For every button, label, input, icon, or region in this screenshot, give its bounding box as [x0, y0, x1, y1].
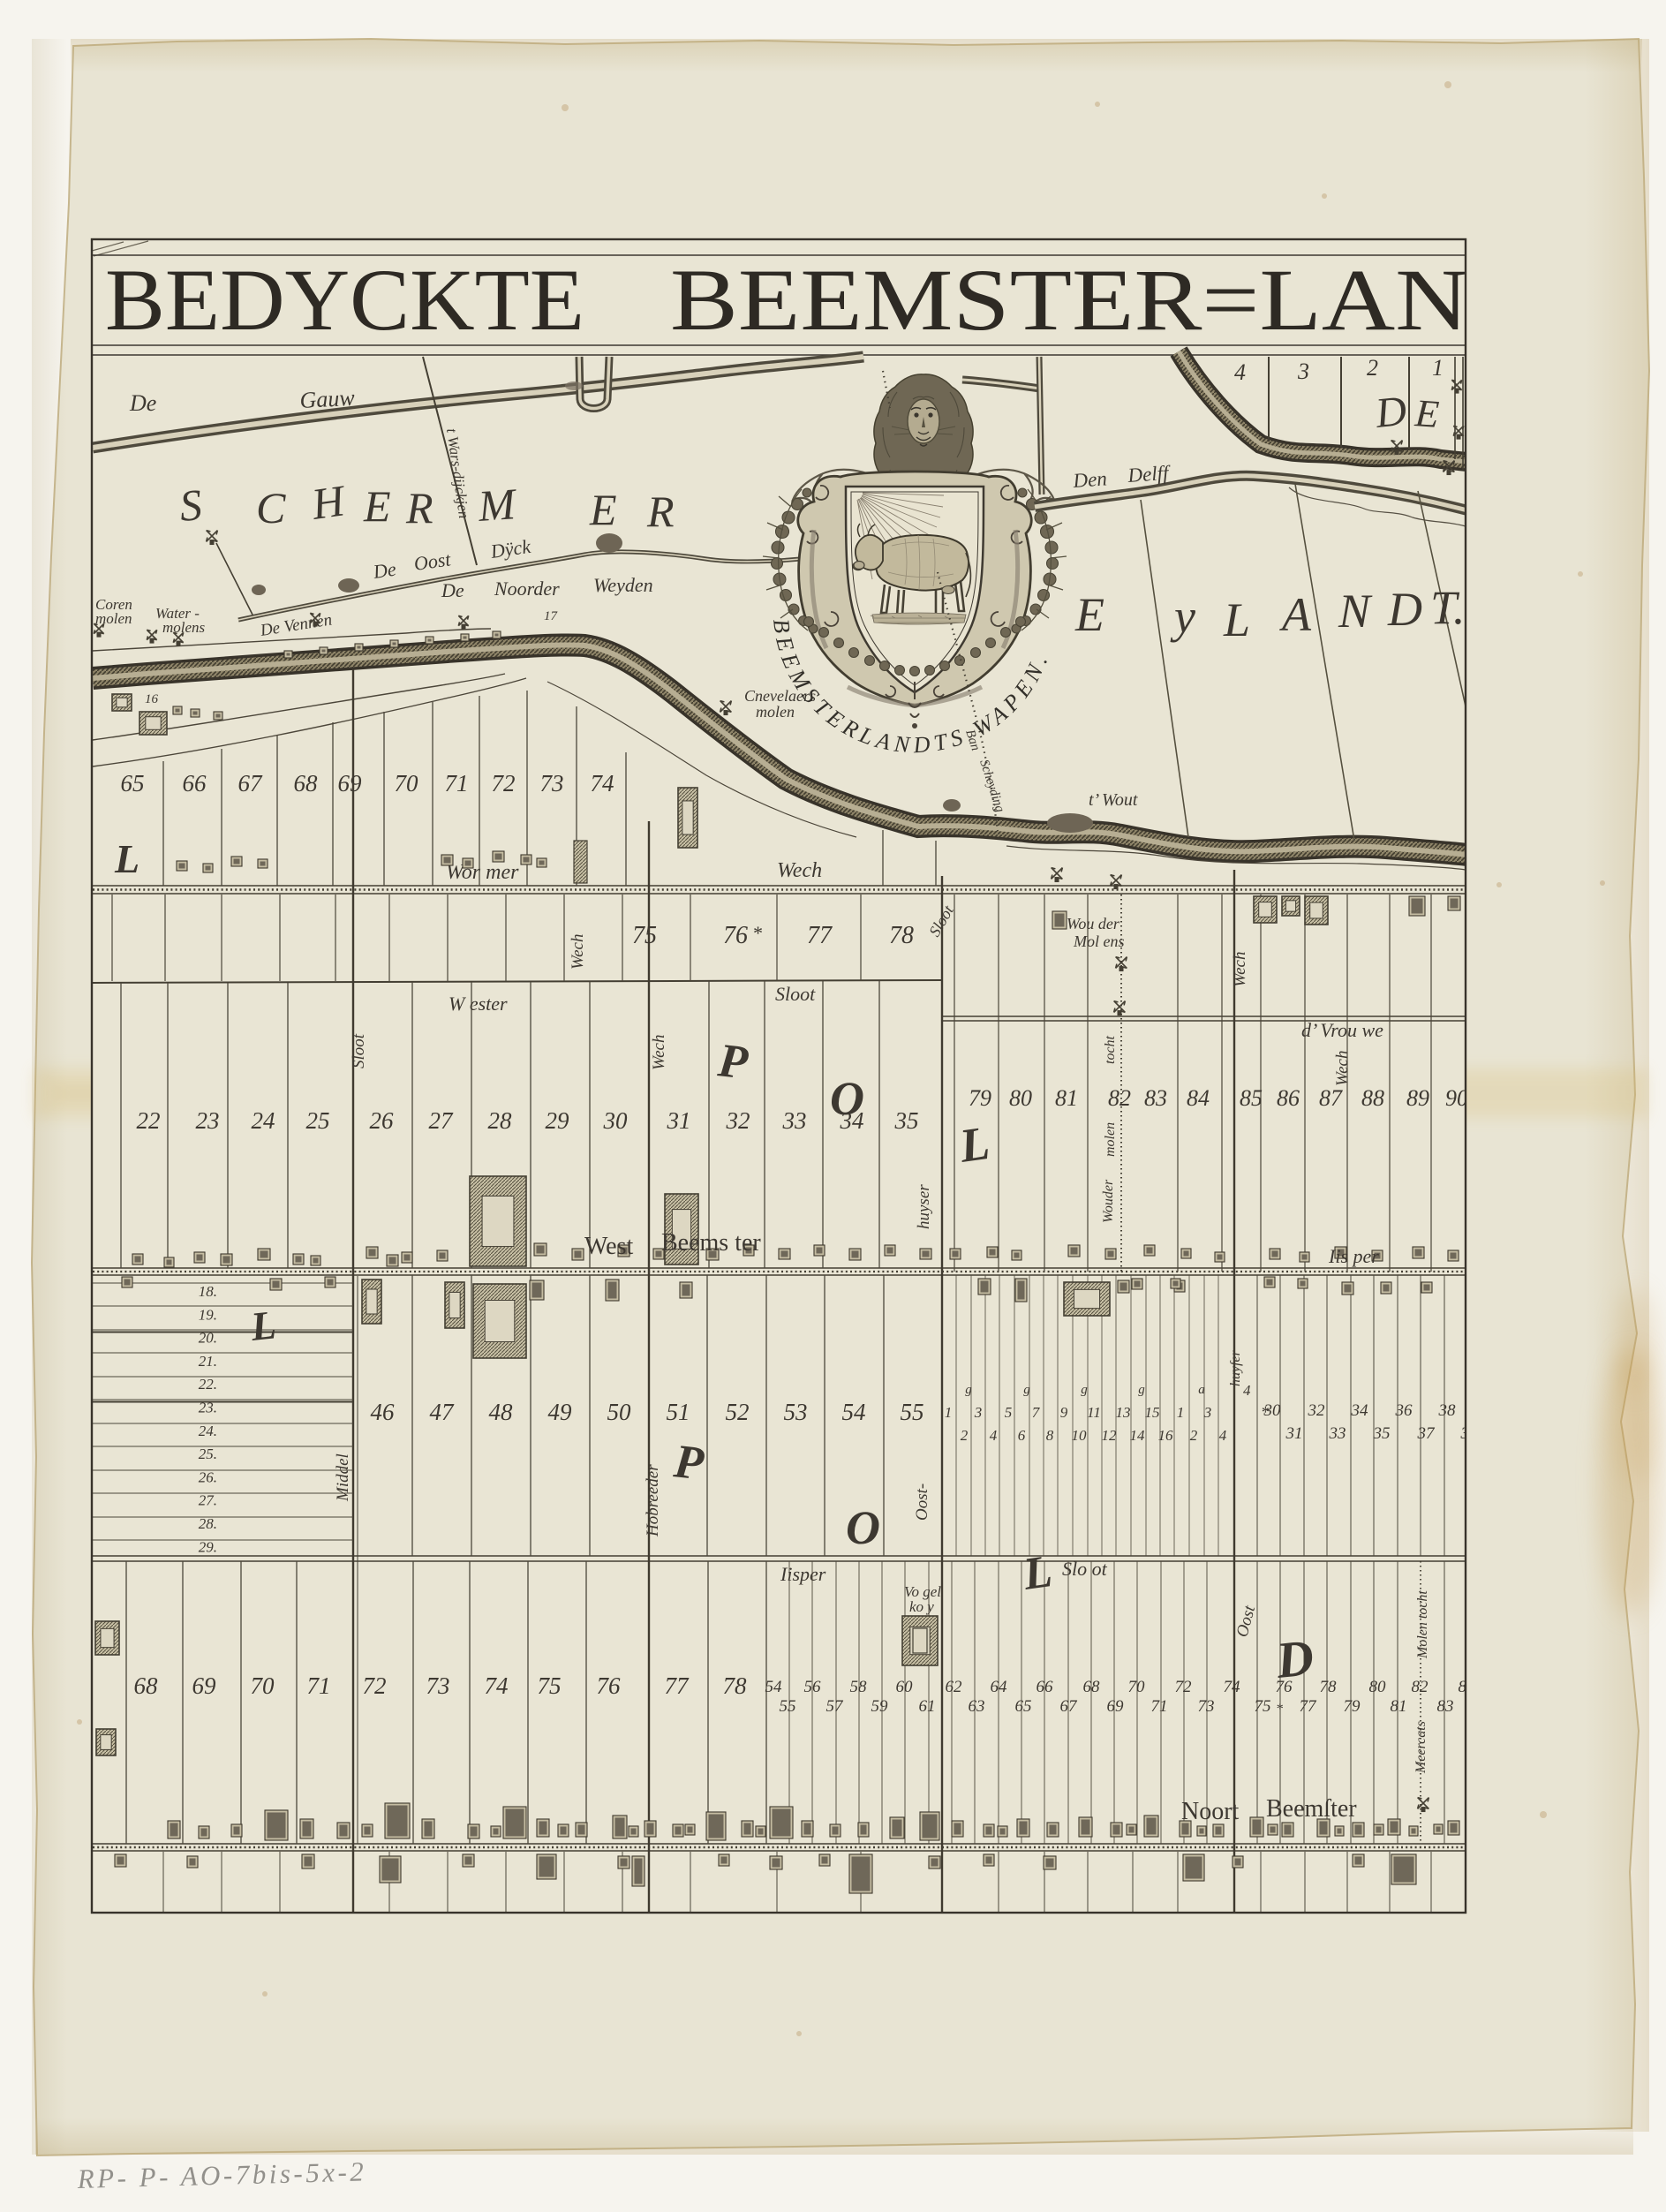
svg-text:74: 74	[485, 1672, 509, 1699]
svg-text:24.: 24.	[199, 1423, 217, 1439]
svg-text:16: 16	[145, 692, 159, 706]
svg-text:35: 35	[1373, 1424, 1391, 1443]
svg-text:Delff: Delff	[1127, 462, 1172, 487]
svg-text:T.: T.	[1430, 581, 1466, 634]
svg-text:49: 49	[548, 1399, 573, 1425]
svg-text:Den: Den	[1072, 467, 1108, 492]
svg-text:62: 62	[946, 1678, 963, 1696]
svg-text:27: 27	[429, 1107, 455, 1134]
svg-text:Beemſter: Beemſter	[1266, 1795, 1357, 1823]
svg-text:74: 74	[1224, 1678, 1241, 1696]
svg-text:g: g	[1023, 1383, 1030, 1397]
svg-text:82: 82	[1108, 1085, 1131, 1111]
svg-text:Iisper: Iisper	[780, 1563, 826, 1585]
svg-text:Beems ter: Beems ter	[661, 1229, 761, 1257]
svg-text:Sloot: Sloot	[350, 1033, 368, 1068]
svg-text:72: 72	[1175, 1678, 1193, 1696]
svg-text:78: 78	[1320, 1678, 1338, 1696]
svg-text:87: 87	[1319, 1085, 1343, 1111]
svg-text:tocht: tocht	[1103, 1035, 1118, 1064]
svg-text:Wech: Wech	[1333, 1051, 1352, 1086]
svg-text:46: 46	[371, 1399, 396, 1425]
svg-text:80: 80	[1009, 1085, 1032, 1111]
svg-text:30: 30	[603, 1107, 629, 1134]
svg-text:molen: molen	[1103, 1122, 1118, 1157]
svg-text:70: 70	[251, 1672, 275, 1699]
svg-text:71: 71	[1151, 1697, 1168, 1716]
svg-text:Gauw: Gauw	[299, 385, 356, 413]
svg-text:L: L	[248, 1302, 278, 1349]
svg-text:78: 78	[723, 1672, 748, 1699]
svg-text:76: 76	[723, 922, 748, 949]
svg-text:E: E	[1074, 588, 1104, 641]
svg-text:4: 4	[1219, 1427, 1227, 1444]
svg-text:74: 74	[591, 770, 614, 796]
svg-text:66: 66	[183, 770, 207, 796]
svg-text:31: 31	[667, 1107, 691, 1134]
svg-text:85: 85	[1240, 1085, 1263, 1111]
svg-text:De: De	[129, 390, 156, 416]
svg-text:57: 57	[826, 1697, 845, 1716]
svg-text:Molen tocht: Molen tocht	[1415, 1590, 1430, 1659]
svg-text:80: 80	[1369, 1678, 1387, 1696]
svg-text:2: 2	[1367, 355, 1378, 381]
svg-text:De: De	[371, 558, 397, 583]
svg-text:20.: 20.	[199, 1330, 217, 1347]
svg-text:81: 81	[1055, 1085, 1078, 1111]
svg-text:88: 88	[1361, 1085, 1384, 1111]
svg-text:53: 53	[784, 1399, 808, 1425]
svg-text:82: 82	[1412, 1678, 1429, 1696]
svg-text:68: 68	[294, 770, 319, 796]
svg-text:19.: 19.	[199, 1306, 217, 1323]
svg-text:BEDYCKTE: BEDYCKTE	[105, 251, 584, 349]
svg-text:Middel: Middel	[334, 1453, 352, 1502]
svg-text:D: D	[1387, 583, 1422, 636]
svg-text:27.: 27.	[199, 1492, 217, 1509]
svg-text:25.: 25.	[199, 1446, 217, 1462]
svg-text:29: 29	[546, 1107, 570, 1134]
svg-text:67: 67	[238, 770, 264, 796]
svg-text:59: 59	[871, 1697, 889, 1716]
svg-text:79: 79	[969, 1085, 991, 1111]
svg-text:Meercats: Meercats	[1413, 1721, 1429, 1774]
svg-text:14: 14	[1130, 1427, 1146, 1444]
svg-text:21.: 21.	[199, 1353, 217, 1370]
svg-text:28: 28	[488, 1107, 513, 1134]
svg-text:2: 2	[961, 1427, 969, 1444]
svg-text:Hobreeder: Hobreeder	[644, 1464, 662, 1537]
svg-text:huyser: huyser	[915, 1184, 933, 1229]
svg-text:81: 81	[1391, 1697, 1407, 1716]
svg-text:West: West	[584, 1233, 634, 1260]
svg-text:g: g	[1081, 1383, 1088, 1397]
svg-text:g: g	[965, 1383, 972, 1397]
svg-text:4: 4	[1234, 359, 1246, 385]
svg-text:37: 37	[1417, 1424, 1436, 1443]
svg-text:S: S	[177, 479, 204, 531]
svg-text:72: 72	[492, 770, 516, 796]
svg-text:56: 56	[804, 1678, 822, 1696]
svg-text:47: 47	[430, 1399, 456, 1425]
svg-text:9: 9	[1060, 1404, 1068, 1421]
svg-text:23.: 23.	[199, 1400, 217, 1416]
svg-text:Slo ot: Slo ot	[1062, 1558, 1108, 1580]
svg-text:65: 65	[121, 770, 145, 796]
svg-text:y: y	[1170, 590, 1195, 643]
svg-text:77: 77	[807, 922, 833, 949]
svg-text:8: 8	[1046, 1427, 1054, 1444]
svg-text:13: 13	[1116, 1404, 1131, 1421]
svg-text:15: 15	[1145, 1404, 1160, 1421]
svg-text:Iis per: Iis per	[1328, 1245, 1379, 1267]
svg-text:65: 65	[1015, 1697, 1032, 1716]
svg-text:23: 23	[196, 1107, 220, 1134]
svg-text:60: 60	[896, 1678, 914, 1696]
svg-text:54: 54	[842, 1399, 866, 1425]
svg-text:51: 51	[667, 1399, 690, 1425]
svg-text:Wech: Wech	[777, 859, 822, 882]
svg-text:Sloot: Sloot	[775, 983, 816, 1005]
svg-text:Wor mer: Wor mer	[446, 861, 519, 884]
svg-text:32: 32	[1308, 1401, 1326, 1420]
svg-text:24: 24	[252, 1107, 275, 1134]
svg-text:BEEMSTER=LANT: BEEMSTER=LANT	[670, 251, 1531, 349]
svg-text:A: A	[1279, 588, 1312, 641]
svg-text:10: 10	[1072, 1427, 1088, 1444]
svg-text:69: 69	[192, 1672, 217, 1699]
svg-text:33: 33	[1329, 1424, 1346, 1443]
svg-text:De: De	[441, 579, 464, 601]
svg-text:50: 50	[607, 1399, 632, 1425]
svg-text:Mol ens: Mol ens	[1073, 932, 1125, 950]
svg-text:D: D	[1273, 1628, 1316, 1689]
svg-text:D: D	[1373, 388, 1409, 437]
svg-text:a: a	[1198, 1383, 1205, 1397]
svg-text:68: 68	[134, 1672, 159, 1699]
svg-text:70: 70	[395, 770, 419, 796]
svg-text:molen: molen	[756, 703, 795, 721]
svg-text:52: 52	[726, 1399, 750, 1425]
svg-text:29.: 29.	[199, 1538, 217, 1555]
svg-text:*: *	[1276, 1702, 1283, 1717]
svg-text:L: L	[114, 836, 139, 881]
svg-text:Wouder: Wouder	[1101, 1179, 1116, 1223]
svg-text:38: 38	[1438, 1401, 1457, 1420]
svg-text:18.: 18.	[199, 1283, 217, 1300]
svg-text:83: 83	[1437, 1697, 1454, 1716]
svg-text:22.: 22.	[199, 1376, 217, 1393]
svg-text:Weyden: Weyden	[593, 574, 653, 596]
svg-text:76: 76	[597, 1672, 622, 1699]
svg-text:Wech: Wech	[650, 1035, 668, 1070]
svg-text:73: 73	[426, 1672, 450, 1699]
svg-text:75: 75	[538, 1672, 562, 1699]
svg-text:63: 63	[969, 1697, 985, 1716]
svg-text:3: 3	[1297, 359, 1309, 384]
svg-text:d’ Vrou we: d’ Vrou we	[1301, 1019, 1383, 1041]
svg-text:22: 22	[137, 1107, 161, 1134]
svg-text:66: 66	[1037, 1678, 1054, 1696]
svg-text:28.: 28.	[199, 1515, 217, 1532]
svg-text:72: 72	[363, 1672, 387, 1699]
svg-text:89: 89	[1406, 1085, 1429, 1111]
svg-text:O: O	[830, 1072, 864, 1125]
svg-text:75: 75	[632, 922, 657, 949]
svg-text:t’ Wout: t’ Wout	[1089, 790, 1138, 810]
svg-text:67: 67	[1060, 1697, 1079, 1716]
svg-text:N: N	[1338, 585, 1373, 638]
svg-text:2: 2	[1190, 1427, 1198, 1444]
svg-text:16: 16	[1158, 1427, 1174, 1444]
svg-text:78: 78	[889, 922, 914, 949]
svg-text:Wech: Wech	[1231, 952, 1249, 987]
svg-text:6: 6	[1018, 1427, 1026, 1444]
svg-text:Wou der: Wou der	[1067, 915, 1120, 932]
svg-text:12: 12	[1102, 1427, 1118, 1444]
svg-text:molens: molens	[162, 619, 206, 636]
svg-text:25: 25	[306, 1107, 330, 1134]
svg-text:26.: 26.	[199, 1468, 217, 1485]
svg-text:75: 75	[1255, 1697, 1271, 1716]
svg-text:4: 4	[1243, 1382, 1251, 1399]
svg-text:71: 71	[307, 1672, 331, 1699]
svg-text:35: 35	[894, 1107, 919, 1134]
svg-text:3: 3	[974, 1404, 983, 1421]
svg-text:58: 58	[850, 1678, 868, 1696]
svg-text:O: O	[846, 1501, 880, 1554]
svg-text:33: 33	[782, 1107, 807, 1134]
svg-text:26: 26	[370, 1107, 395, 1134]
svg-text:E: E	[589, 485, 617, 534]
svg-text:71: 71	[445, 770, 469, 796]
svg-text:86: 86	[1277, 1085, 1300, 1111]
svg-text:molen: molen	[95, 610, 132, 627]
svg-text:17: 17	[544, 609, 559, 623]
svg-text:48: 48	[489, 1399, 514, 1425]
svg-text:79: 79	[1344, 1697, 1361, 1716]
svg-text:E: E	[1413, 391, 1440, 436]
svg-text:huyſer: huyſer	[1228, 1349, 1243, 1386]
svg-text:64: 64	[991, 1678, 1008, 1696]
svg-text:4: 4	[990, 1427, 998, 1444]
svg-text:3: 3	[1203, 1404, 1212, 1421]
svg-text:84: 84	[1187, 1085, 1210, 1111]
svg-text:g: g	[1138, 1383, 1145, 1397]
svg-text:1: 1	[1177, 1404, 1185, 1421]
svg-text:Noort: Noort	[1181, 1798, 1240, 1825]
svg-text:1: 1	[1432, 355, 1444, 381]
svg-text:77: 77	[665, 1672, 690, 1699]
svg-text:32: 32	[726, 1107, 750, 1134]
svg-text:31: 31	[1285, 1424, 1303, 1443]
svg-text:34: 34	[1351, 1401, 1369, 1420]
svg-text:E: E	[363, 481, 391, 531]
svg-text:83: 83	[1144, 1085, 1167, 1111]
svg-text:55: 55	[780, 1697, 796, 1716]
svg-text:61: 61	[919, 1697, 936, 1716]
svg-text:36: 36	[1395, 1401, 1413, 1420]
svg-text:Oost-: Oost-	[913, 1483, 931, 1521]
svg-text:Wech: Wech	[569, 934, 587, 970]
svg-text:11: 11	[1087, 1404, 1101, 1421]
svg-text:Noorder: Noorder	[494, 578, 560, 600]
svg-text:C: C	[256, 483, 286, 532]
svg-text:69: 69	[1107, 1697, 1125, 1716]
svg-text:M: M	[476, 479, 519, 531]
svg-text:68: 68	[1083, 1678, 1101, 1696]
svg-text:*: *	[752, 922, 762, 944]
svg-text:1: 1	[945, 1404, 953, 1421]
svg-text:R: R	[646, 487, 675, 536]
svg-text:L: L	[1223, 593, 1250, 646]
svg-text:W ester: W ester	[449, 993, 508, 1015]
svg-text:73: 73	[1198, 1697, 1215, 1716]
svg-text:R: R	[405, 483, 433, 532]
svg-text:77: 77	[1300, 1697, 1318, 1716]
svg-text:ko y: ko y	[909, 1598, 934, 1615]
svg-text:5: 5	[1005, 1404, 1013, 1421]
svg-text:70: 70	[1128, 1678, 1146, 1696]
svg-text:73: 73	[540, 770, 564, 796]
svg-text:55: 55	[901, 1399, 924, 1425]
svg-text:69: 69	[338, 770, 363, 796]
svg-text:*: *	[1261, 1403, 1269, 1421]
svg-text:54: 54	[765, 1678, 783, 1696]
